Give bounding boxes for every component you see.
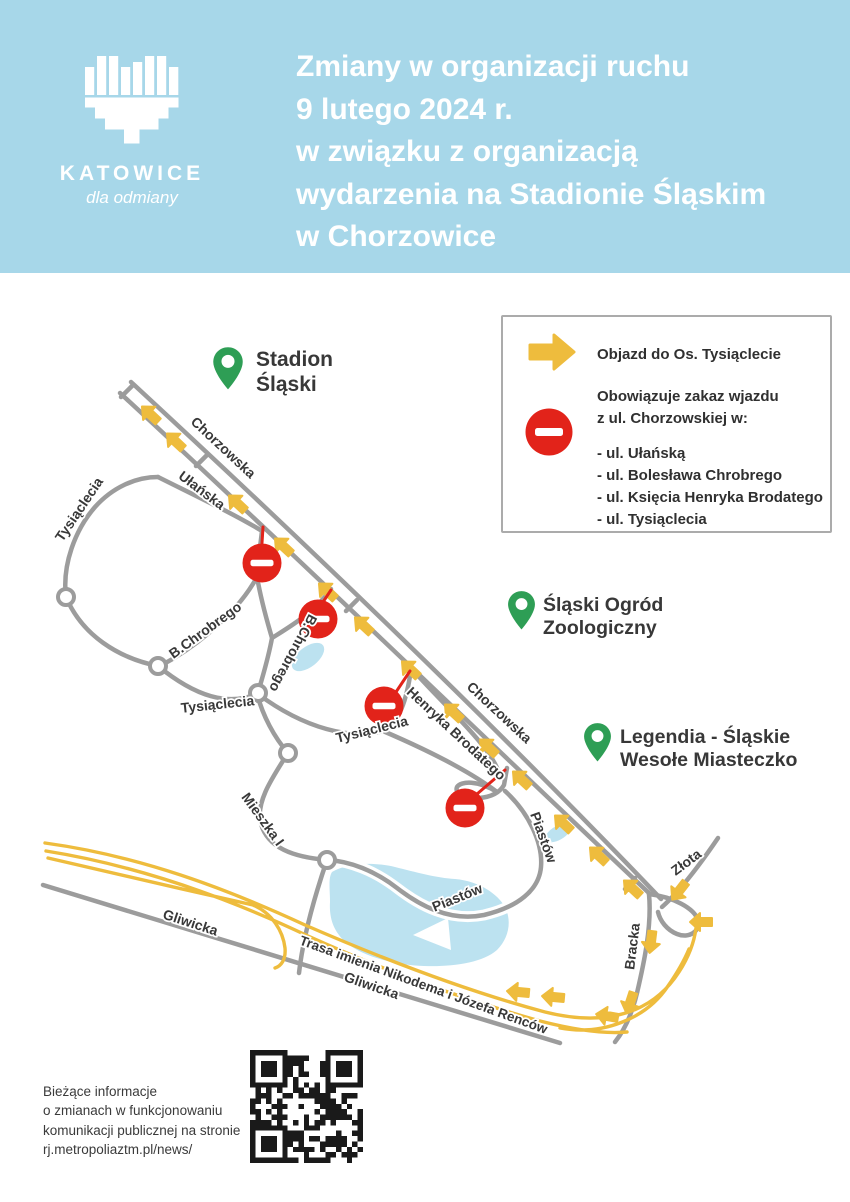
legend-ban-street: - ul. Księcia Henryka Brodatego	[597, 487, 823, 509]
footer-info-line: komunikacji publicznej na stronie	[43, 1121, 273, 1140]
legend-ban-intro-line: z ul. Chorzowskiej w:	[597, 408, 779, 430]
legend-ban-street: - ul. Tysiąclecia	[597, 509, 823, 531]
no-entry-icon	[524, 407, 574, 457]
legend-ban-street: - ul. Ułańską	[597, 443, 823, 465]
footer-info: Bieżące informacje o zmianach w funkcjon…	[43, 1082, 273, 1159]
street-label-tysiaclecia: Tysiąclecia	[180, 692, 255, 716]
roundabout-node	[319, 852, 335, 868]
pin-label-zoo: Śląski Ogród	[543, 592, 663, 616]
roundabout-node	[58, 589, 74, 605]
location-pin-icon	[213, 347, 242, 389]
street-label-bchrobrego: B.Chrobrego	[166, 598, 245, 661]
roundabout-node	[150, 658, 166, 674]
poster-title-line: wydarzenia na Stadionie Śląskim	[296, 174, 826, 217]
detour-arrow-icon	[528, 330, 576, 374]
legend-ban-street: - ul. Bolesława Chrobrego	[597, 465, 823, 487]
no-entry-stem	[262, 527, 263, 543]
poster-title-line: w Chorzowice	[296, 216, 826, 259]
street-label-gliwicka: Gliwicka	[161, 906, 220, 939]
footer-info-line: rj.metropoliaztm.pl/news/	[43, 1140, 273, 1159]
detour-arrow-icon	[506, 982, 529, 1002]
pin-label-zoo: Zoologiczny	[543, 617, 657, 639]
location-pin-icon	[584, 723, 611, 761]
poster-title-line: Zmiany w organizacji ruchu	[296, 46, 826, 89]
roundabout-node	[280, 745, 296, 761]
logo-heart-icon	[57, 36, 207, 156]
detour-arrow-icon	[349, 611, 377, 639]
street-label-zlota: Złota	[668, 845, 705, 878]
footer-info-line: o zmianach w funkcjonowaniu	[43, 1101, 273, 1120]
katowice-logo: KATOWICE dla odmiany	[57, 36, 207, 216]
logo-city-name: KATOWICE	[57, 162, 207, 186]
legend-ban-intro: Obowiązuje zakaz wjazdu z ul. Chorzowski…	[597, 386, 779, 430]
logo-tagline: dla odmiany	[57, 188, 207, 208]
location-pin-icon	[508, 591, 535, 629]
poster-title: Zmiany w organizacji ruchu 9 lutego 2024…	[296, 46, 826, 259]
detour-arrow-icon	[541, 987, 564, 1007]
legend-box: Objazd do Os. Tysiąclecie Obowiązuje zak…	[501, 315, 832, 533]
pin-label-stadion: Śląski	[256, 372, 317, 396]
pin-label-legendia: Wesołe Miasteczko	[620, 749, 797, 771]
poster: { "header": { "logo_city": "KATOWICE", "…	[0, 0, 850, 1202]
no-entry-sign	[243, 544, 282, 583]
no-entry-sign	[446, 789, 485, 828]
pin-label-stadion: Stadion	[256, 348, 333, 371]
legend-ban-intro-line: Obowiązuje zakaz wjazdu	[597, 386, 779, 408]
street-label-bracka: Bracka	[621, 922, 643, 971]
footer-info-line: Bieżące informacje	[43, 1082, 273, 1101]
legend-ban-street-list: - ul. Ułańską - ul. Bolesława Chrobrego …	[597, 443, 823, 531]
header-banner: KATOWICE dla odmiany Zmiany w organizacj…	[0, 0, 850, 273]
poster-title-line: w związku z organizacją	[296, 131, 826, 174]
qr-code	[250, 1050, 363, 1163]
poster-title-line: 9 lutego 2024 r.	[296, 89, 826, 132]
legend-detour-label: Objazd do Os. Tysiąclecie	[597, 346, 781, 363]
pin-label-legendia: Legendia - Śląskie	[620, 724, 790, 748]
poster-page: KATOWICE dla odmiany Zmiany w organizacj…	[0, 0, 850, 1202]
